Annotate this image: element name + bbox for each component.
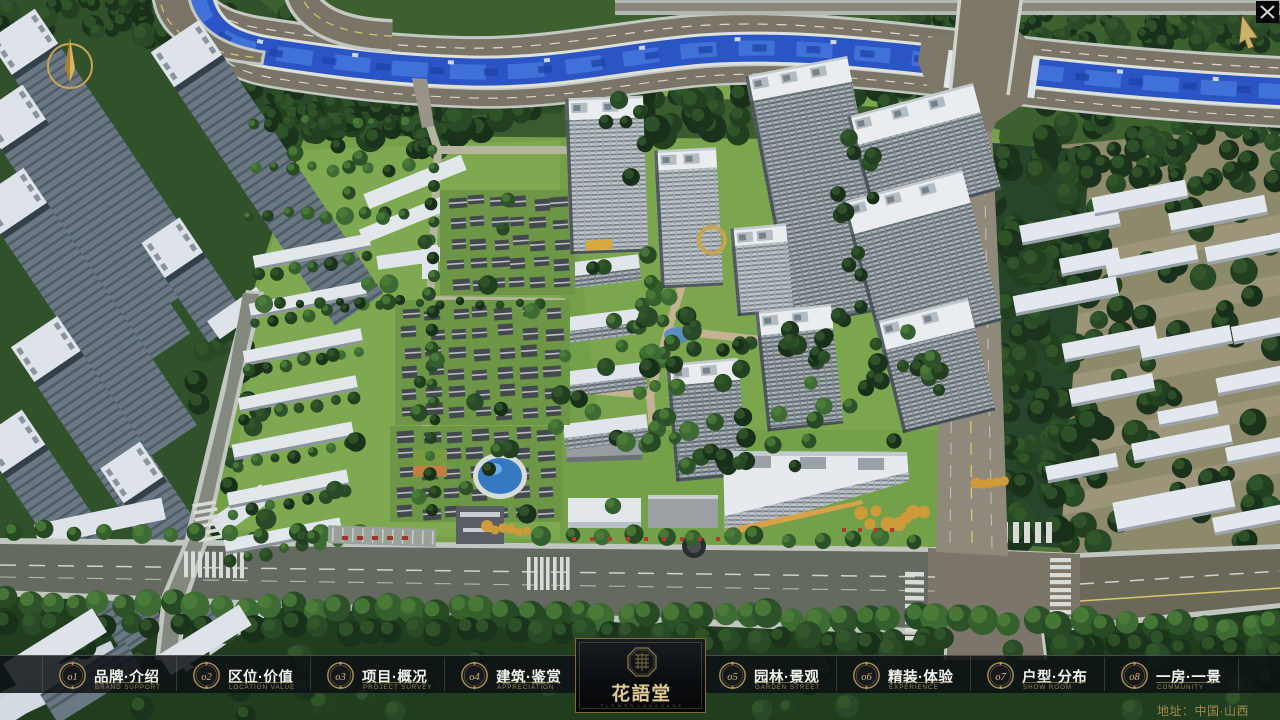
svg-text:o3: o3	[335, 672, 346, 683]
svg-text:o7: o7	[995, 672, 1006, 683]
svg-text:o4: o4	[469, 672, 480, 683]
svg-text:o2: o2	[201, 672, 212, 683]
svg-text:o1: o1	[67, 672, 78, 683]
svg-text:o5: o5	[727, 672, 738, 683]
svg-text:o8: o8	[1129, 672, 1140, 683]
svg-text:o6: o6	[861, 672, 872, 683]
